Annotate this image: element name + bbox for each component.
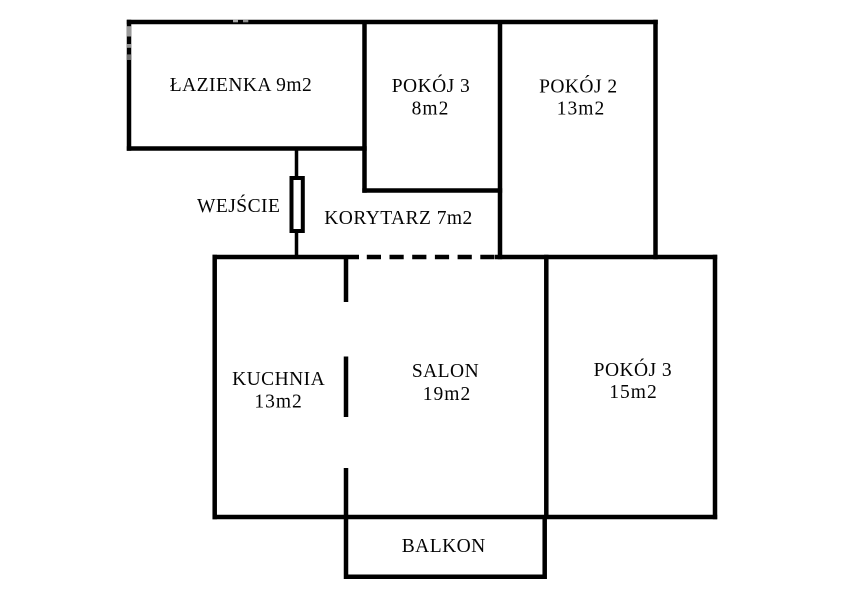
svg-text:15m2: 15m2	[609, 382, 657, 403]
svg-text:8m2: 8m2	[412, 99, 450, 120]
svg-text:KORYTARZ 7m2: KORYTARZ 7m2	[324, 208, 472, 229]
svg-text:ŁAZIENKA 9m2: ŁAZIENKA 9m2	[170, 75, 312, 96]
svg-text:BALKON: BALKON	[402, 536, 486, 557]
svg-text:KUCHNIA: KUCHNIA	[232, 369, 325, 390]
svg-text:SALON: SALON	[412, 361, 479, 382]
svg-text:POKÓJ 2: POKÓJ 2	[539, 75, 617, 97]
svg-text:19m2: 19m2	[423, 384, 471, 405]
svg-text:13m2: 13m2	[557, 99, 605, 120]
svg-text:WEJŚCIE: WEJŚCIE	[197, 195, 280, 217]
svg-text:POKÓJ 3: POKÓJ 3	[392, 75, 470, 97]
svg-text:13m2: 13m2	[254, 392, 302, 413]
svg-text:POKÓJ 3: POKÓJ 3	[594, 359, 672, 381]
